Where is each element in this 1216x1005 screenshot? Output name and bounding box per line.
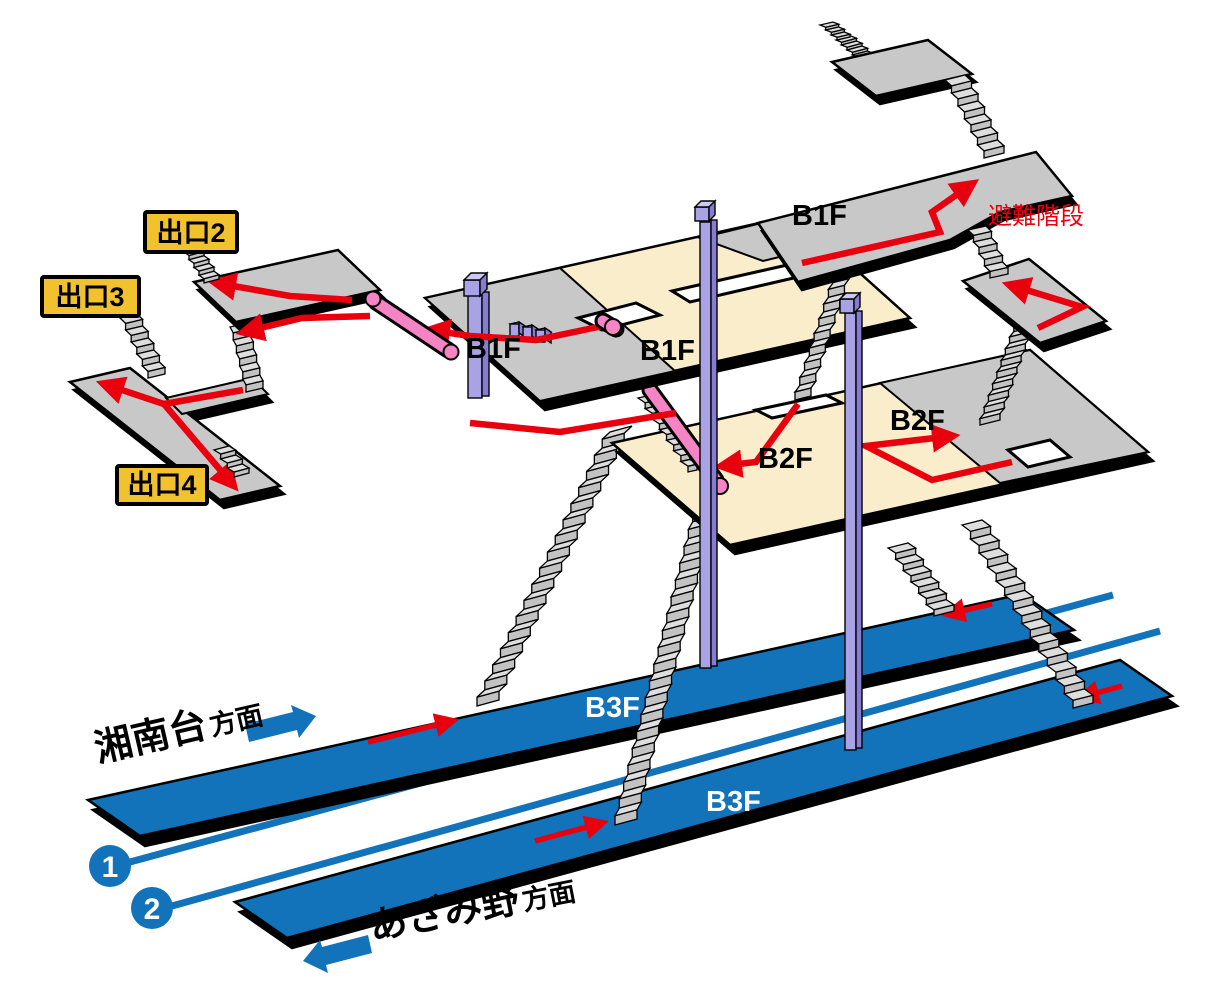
b1f-label-gray: B1F [466, 333, 521, 365]
exit4-label: 出口4 [127, 470, 196, 500]
b1f-label-cream: B1F [640, 335, 695, 367]
exit4-badge: 出口4 [117, 466, 207, 504]
station-evacuation-diagram: B3F B3F B2F B2F [0, 0, 1216, 1000]
b2f-label-cream: B2F [758, 443, 813, 475]
east-evac-landing [963, 259, 1110, 351]
shonandai-text: 湘南台方面 [91, 691, 267, 770]
track-1-badge: 1 [89, 845, 131, 887]
track-2-number: 2 [144, 893, 161, 926]
exit3-label: 出口3 [55, 282, 124, 312]
exit3-badge: 出口3 [42, 277, 139, 316]
b2f-label-gray: B2F [890, 405, 945, 437]
escalator-drum-b1f-hole [605, 319, 621, 335]
exit2-label: 出口2 [156, 218, 225, 248]
diagram-canvas: B3F B3F B2F B2F [0, 0, 1216, 1000]
exit2-badge: 出口2 [145, 212, 237, 252]
route-b2f-west [470, 413, 676, 432]
track-1-number: 1 [102, 851, 119, 884]
track-2-badge: 2 [131, 887, 173, 929]
b1f-label-corridor: B1F [792, 200, 847, 232]
evacuation-stairs-label: 避難階段 [988, 203, 1084, 230]
b3f-label-platform1: B3F [585, 692, 640, 724]
b3f-label-platform2: B3F [706, 786, 761, 818]
exit-corridor-upper [194, 250, 384, 332]
